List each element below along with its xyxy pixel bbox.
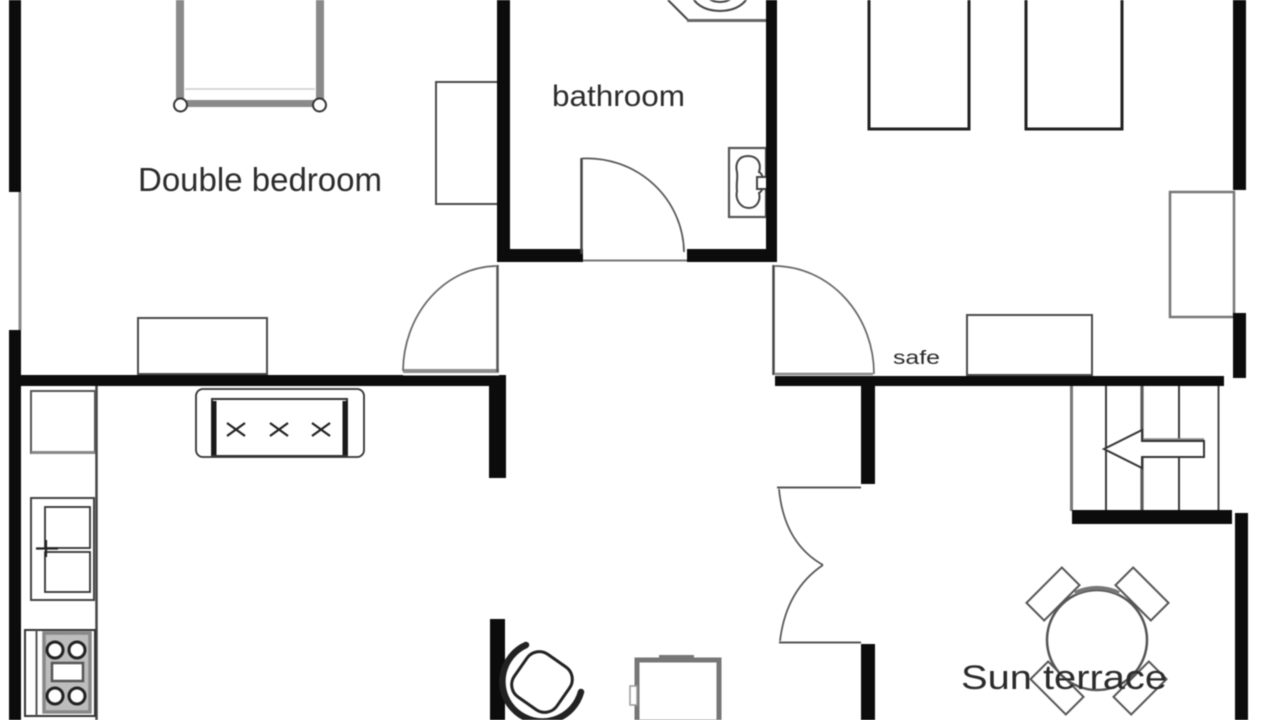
svg-text:bathroom: bathroom xyxy=(552,80,685,113)
svg-text:safe: safe xyxy=(893,348,940,369)
svg-text:Sun terrace: Sun terrace xyxy=(961,659,1167,697)
svg-text:Double bedroom: Double bedroom xyxy=(138,161,382,198)
